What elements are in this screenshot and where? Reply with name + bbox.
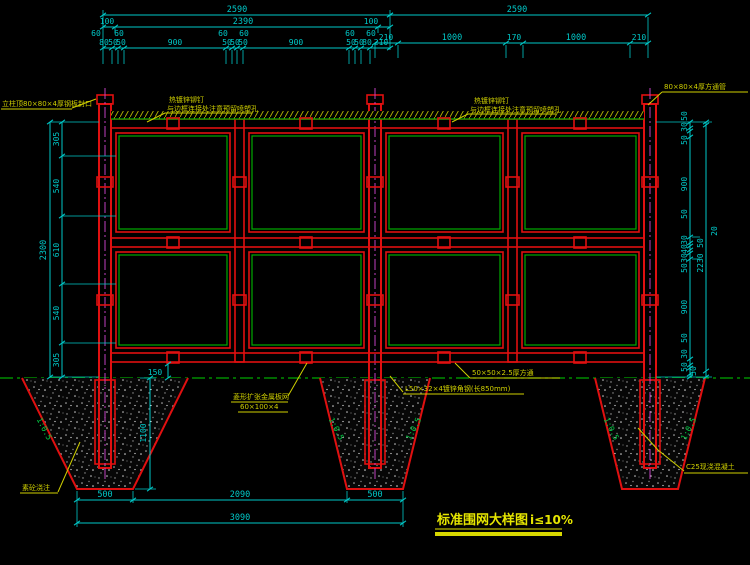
callout-post-cap: 立柱顶80×80×4厚钢板封口 — [2, 99, 92, 108]
drawing-title-suffix: i≤10% — [530, 513, 573, 527]
callout-plain-concrete: 素砼浇注 — [22, 483, 50, 492]
dim-label: 1100 — [139, 423, 148, 442]
dim-label: 170 — [507, 33, 522, 42]
callout-square-tube: 80×80×4厚方通管 — [664, 82, 726, 91]
dim-label: 610 — [52, 243, 61, 258]
dim-label: 2590 — [227, 5, 247, 15]
mesh-panel — [116, 133, 230, 232]
dim-label: 50 — [680, 209, 689, 219]
dim-label: 2390 — [233, 17, 253, 27]
mesh-panel — [386, 252, 503, 348]
dim-label: 900 — [680, 300, 689, 315]
dim-label: 30 — [680, 253, 689, 263]
post-middle — [367, 88, 383, 480]
dim-label: 900 — [680, 177, 689, 192]
callout-cast-concrete: C25现浇混凝土 — [686, 462, 735, 471]
dim-label: 100 — [100, 17, 115, 26]
callout-rivet-line1: 热镀锌铆钉 — [169, 95, 204, 104]
dim-label: 50 — [680, 111, 689, 121]
dim-label: 100 — [364, 17, 379, 26]
dim-label: 40 — [680, 244, 689, 254]
mesh-panel — [522, 133, 639, 232]
drawing-title: 标准围网大样图 — [436, 512, 528, 528]
dim-label: 305 — [52, 353, 61, 368]
callout-mesh-line2: 60×100×4 — [240, 403, 279, 411]
callout-mesh-line1: 菱形扩张金属板网 — [233, 392, 289, 401]
callout-frame-tube: 50×50×2.5厚方通 — [472, 368, 534, 377]
callout-angle-steel: L50×32×4镀锌角钢(长850mm) — [405, 384, 511, 393]
dim-label: 50 — [689, 366, 698, 376]
dim-label: 900 — [168, 38, 183, 47]
dim-label: 500 — [367, 490, 382, 500]
dim-label: 50 — [116, 38, 126, 47]
dim-label: 30 — [680, 235, 689, 245]
dim-label: 60 — [366, 29, 376, 38]
dim-label: 210 — [379, 33, 394, 42]
dim-label: 50 — [680, 362, 689, 372]
mesh-panel — [522, 252, 639, 348]
dim-label: 2590 — [507, 5, 527, 15]
dim-label: 60 — [91, 29, 101, 38]
dim-chain-right: 50 30 50 900 50 30 40 30 50 900 50 30 50… — [656, 111, 719, 379]
dim-label: 50 — [680, 263, 689, 273]
mesh-panel — [116, 252, 230, 348]
dim-label: 500 — [97, 490, 112, 500]
drawing-title-block: 标准围网大样图 i≤10% — [435, 512, 573, 536]
title-underline-bar — [435, 532, 562, 536]
dim-label: 540 — [52, 306, 61, 321]
dim-label: 210 — [632, 33, 647, 42]
dim-label: 540 — [52, 179, 61, 194]
dim-label: 3090 — [230, 513, 250, 523]
dim-label: 50 — [680, 333, 689, 343]
cad-sheet: 2590 100 2390 100 60 60 60 60 60 60 80 5… — [0, 0, 750, 565]
dim-label: 900 — [289, 38, 304, 47]
mesh-panels — [116, 133, 639, 348]
callout-rivet-line2: 与边框连接处注意预留喷塑孔 — [167, 104, 258, 113]
dim-label: 60 — [239, 29, 249, 38]
dim-label: 50 — [238, 38, 248, 47]
dim-label: 150 — [148, 368, 163, 377]
mesh-panel — [386, 133, 503, 232]
callout-rivet-line1: 热镀锌铆钉 — [474, 96, 509, 105]
dim-chain-top-right: 2590 210 1000 170 1000 210 — [372, 5, 651, 58]
dim-label: 50 — [696, 238, 705, 248]
dim-chain-left: 305 540 610 540 305 2300 — [39, 120, 116, 379]
dim-label: 2090 — [230, 490, 250, 500]
dim-label: 60 — [114, 29, 124, 38]
dim-chain-top-left: 2590 100 2390 100 60 60 60 60 60 60 80 5… — [91, 5, 393, 64]
fence-detail-drawing: 2590 100 2390 100 60 60 60 60 60 60 80 5… — [0, 0, 750, 565]
dim-label: 60 — [218, 29, 228, 38]
dim-label: 30 — [680, 349, 689, 359]
mesh-clips — [97, 118, 658, 363]
dim-label: 1000 — [566, 33, 586, 43]
dim-label: 80 — [362, 38, 372, 47]
dim-label: 60 — [345, 29, 355, 38]
fence-frame — [111, 119, 644, 362]
dim-label: 20 — [710, 226, 719, 236]
callout-rivet-line2: 与边框连接处注意预留喷塑孔 — [470, 105, 561, 114]
dim-label: 50 — [680, 135, 689, 145]
mesh-panel — [249, 252, 364, 348]
post-right — [642, 88, 658, 480]
dim-label: 2230 — [696, 253, 705, 272]
dim-label: 1000 — [442, 33, 462, 43]
mesh-panel — [249, 133, 364, 232]
dim-label: 2300 — [39, 240, 49, 260]
dim-label: 30 — [680, 122, 689, 132]
dim-label: 305 — [52, 132, 61, 147]
